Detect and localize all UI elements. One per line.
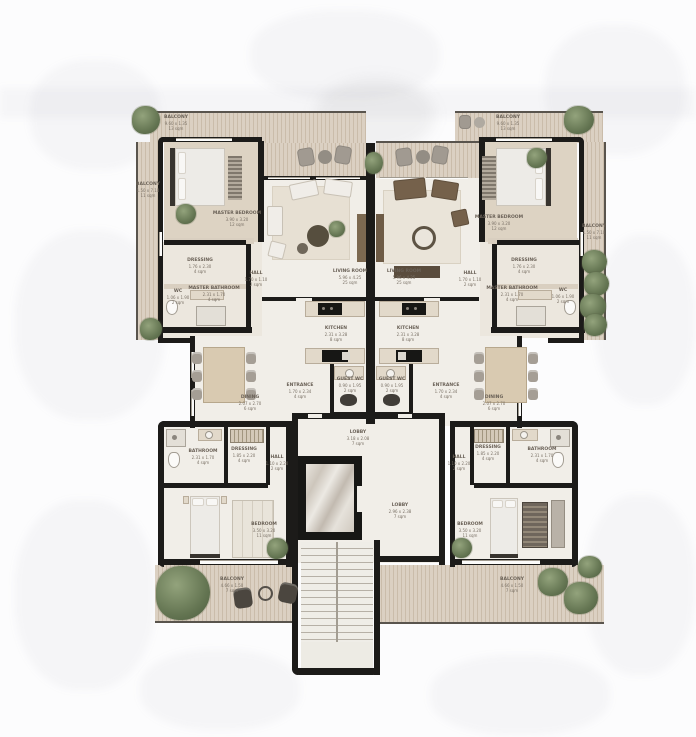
coffee-table [307,225,329,247]
bed-pillow [178,152,186,174]
wc-basin [205,431,213,439]
plant [140,318,162,340]
side-table [297,243,308,254]
bed-pillow [535,178,543,200]
site-shadow [430,655,610,735]
nightstand [221,496,227,504]
lift-door-opening [357,486,362,512]
floor-plan: BALCONY9.60 x 1.3513 sqm BALCONY9.60 x 1… [0,0,696,737]
room-label-kitchen: KITCHEN2.31 x 3.288 sqm [397,326,420,342]
sofa [393,177,427,200]
room-label-bathroom: BATHROOM2.31 x 1.704 sqm [528,447,557,463]
dining-chair [192,352,202,364]
room-label-balcony: BALCONY4.66 x 1.507 sqm [500,577,524,593]
tv-console [357,214,366,262]
wall-segment [572,421,578,567]
dining-chair [528,352,538,364]
toilet [168,452,180,468]
wall-segment [292,668,380,675]
shower-drain [556,435,561,440]
room-label-kitchen: KITCHEN2.31 x 3.288 sqm [325,326,348,342]
outdoor-chair [395,147,413,167]
wc-basin [520,431,528,439]
room-label-wc: WC1.06 x 1.902 sqm [552,288,575,304]
room-label-dining: DINING2.07 x 2.706 sqm [483,395,506,411]
room-label-dining: DINING2.07 x 2.706 sqm [239,395,262,411]
shower [196,306,226,326]
room-label-hall: HALL1.10 x 2.202 sqm [266,455,289,471]
balcony-railing [155,621,293,623]
bed-pillow [178,178,186,200]
site-shadow [140,650,300,730]
toilet [383,394,400,406]
wall-segment [292,413,298,675]
dining-chair [246,370,256,382]
wall-segment [366,143,375,424]
dining-chair [192,370,202,382]
room-label-hall: HALL1.10 x 2.202 sqm [448,455,471,471]
room-label-wc: WC1.06 x 1.902 sqm [167,289,190,305]
burner [414,307,417,310]
outdoor-chair [459,115,471,129]
room-label-master-bedroom: MASTER BEDROOM3.90 x 3.2012 sqm [213,211,261,227]
door-opening [398,414,412,418]
site-shadow [595,235,695,405]
balcony-deck-left-side [138,142,158,340]
balcony-railing [150,111,366,113]
room-label-balcony: BALCONY1.50 x 7.1011 sqm [136,182,160,198]
bed-pillow [192,498,204,506]
dining-chair [528,388,538,400]
room-label-living: LIVING ROOM5.96 x 4.2525 sqm [387,269,421,285]
wall-segment [491,327,585,333]
room-label-entrance: ENTRANCE1.70 x 2.344 sqm [287,383,314,399]
chaise-lounge [267,206,283,236]
balcony-railing [378,622,604,624]
outdoor-chair [431,145,450,166]
armchair [451,209,470,228]
room-label-balcony: BALCONY1.50 x 7.1011 sqm [582,224,606,240]
outdoor-table [474,117,485,128]
room-label-bathroom: BATHROOM2.31 x 1.704 sqm [189,449,218,465]
outdoor-table [318,150,332,164]
burner [322,307,325,310]
balcony-railing [136,142,138,340]
stair-landing [301,642,373,668]
wall-segment [497,240,579,245]
room-label-guest-wc: GUEST WC0.90 x 1.952 sqm [337,377,364,393]
room-label-hall: HALL1.70 x 1.102 sqm [245,271,268,287]
sofa [431,179,459,201]
bed-pillow [505,500,516,508]
wall-segment [548,338,584,343]
dining-chair [474,370,484,382]
wall-segment [224,427,228,485]
room-label-master-bedroom: MASTER BEDROOM3.90 x 3.2012 sqm [475,215,523,231]
burner [330,307,333,310]
room-label-hall: HALL1.70 x 1.102 sqm [459,271,482,287]
wall-segment [409,364,413,416]
wall-segment [158,338,194,343]
room-label-balcony: BALCONY4.66 x 1.507 sqm [220,577,244,593]
room-label-dressing: DRESSING1.85 x 2.204 sqm [475,445,501,461]
outdoor-table [416,150,430,164]
wall-segment [378,556,442,562]
wardrobe [474,429,504,443]
dining-chair [528,370,538,382]
bedroom-rug [228,156,242,200]
balcony-railing [376,141,486,143]
lift-cabin [306,464,354,532]
sliding-door [426,177,468,179]
outdoor-chair [334,145,353,166]
wardrobe [522,502,548,548]
dining-chair [246,352,256,364]
room-label-bedroom: BEDROOM3.50 x 3.2011 sqm [251,522,277,538]
shower [516,306,546,326]
door-opening [308,414,322,418]
bed-pillow [206,498,218,506]
sliding-door [200,560,278,564]
bed-footboard [490,554,518,558]
window [496,138,552,141]
outdoor-table [258,586,273,601]
shelving-unit [551,500,565,548]
wall-segment [439,413,445,565]
room-label-master-bathroom: MASTER BATHROOM2.31 x 1.704 sqm [188,286,239,302]
wall-segment [158,327,252,333]
wall-segment [162,483,268,488]
wardrobe [230,429,264,443]
shower-drain [172,435,177,440]
outdoor-chair [297,147,316,168]
toilet [340,394,357,406]
site-shadow [15,500,155,690]
kitchen-sink [398,352,406,360]
room-label-dressing: DRESSING1.85 x 2.204 sqm [231,447,257,463]
bed-pillow [492,500,503,508]
dining-chair [192,388,202,400]
wall-segment [158,421,164,567]
room-label-master-bathroom: MASTER BATHROOM2.31 x 1.704 sqm [486,286,537,302]
room-label-balcony: BALCONY9.60 x 1.3513 sqm [496,115,520,131]
room-label-lobby: LOBBY2.96 x 2.387 sqm [389,503,412,519]
wall-segment [506,427,510,485]
wall-segment [474,483,574,488]
kitchen-sink [342,352,350,360]
room-label-guest-wc: GUEST WC0.90 x 1.952 sqm [379,377,406,393]
burner [406,307,409,310]
room-label-bedroom: BEDROOM3.50 x 3.2011 sqm [457,522,483,538]
sliding-door [462,560,540,564]
room-label-living: LIVING ROOM5.96 x 4.2525 sqm [333,269,367,285]
dining-chair [474,352,484,364]
room-label-dressing: DRESSING1.76 x 2.304 sqm [187,258,213,274]
bedroom-rug [482,156,496,200]
room-label-entrance: ENTRANCE1.70 x 2.344 sqm [433,383,460,399]
window [159,232,162,256]
bed-footboard [190,554,220,558]
tv-console [376,214,384,262]
coffee-table [412,226,436,250]
sliding-door [268,177,310,179]
room-label-lobby: LOBBY3.18 x 2.087 sqm [347,430,370,446]
room-label-balcony: BALCONY9.60 x 1.3513 sqm [164,115,188,131]
sliding-door [316,177,360,179]
wall-segment [246,244,251,332]
wall-segment [164,240,246,245]
room-label-dressing: DRESSING1.76 x 2.304 sqm [511,258,537,274]
window [176,138,232,141]
nightstand [183,496,189,504]
stair-stringer [336,542,338,642]
